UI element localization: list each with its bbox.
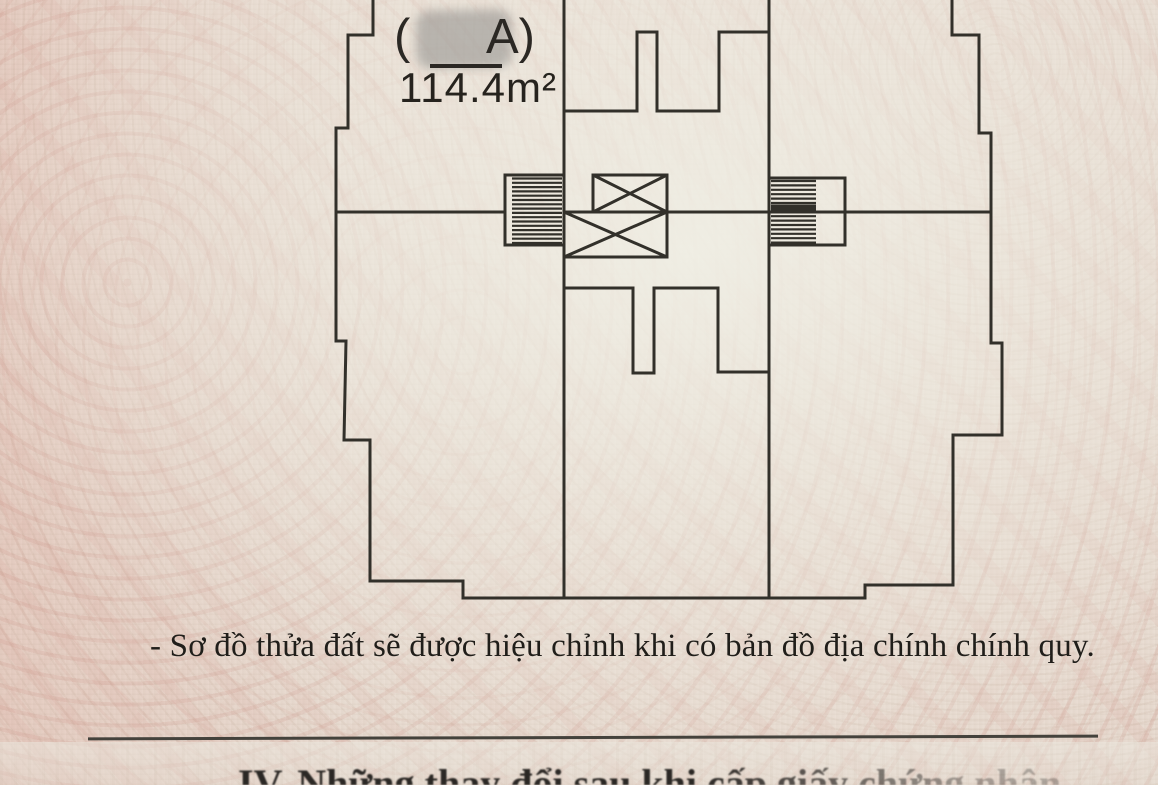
plan-caption: - Sơ đồ thửa đất sẽ được hiệu chỉnh khi … — [150, 628, 1158, 665]
area-value: 114.4m² — [399, 67, 557, 109]
parcel-label-suffix: A) — [486, 13, 535, 62]
elevator-shaft-lower — [564, 212, 667, 257]
floor-plan-drawing — [0, 0, 1158, 785]
section-heading: IV. Những thay đổi sau khi cấp giấy chứn… — [238, 760, 1158, 785]
certificate-page-photo: ( A) 114.4m² - Sơ đồ thửa đất sẽ được hi… — [0, 0, 1158, 785]
parcel-label-open-paren: ( — [394, 13, 410, 62]
core-top-wall — [564, 32, 769, 111]
elevator-shaft-upper — [593, 175, 667, 212]
core-bottom-wall — [564, 288, 769, 373]
stairs-left-hatch — [505, 175, 564, 245]
